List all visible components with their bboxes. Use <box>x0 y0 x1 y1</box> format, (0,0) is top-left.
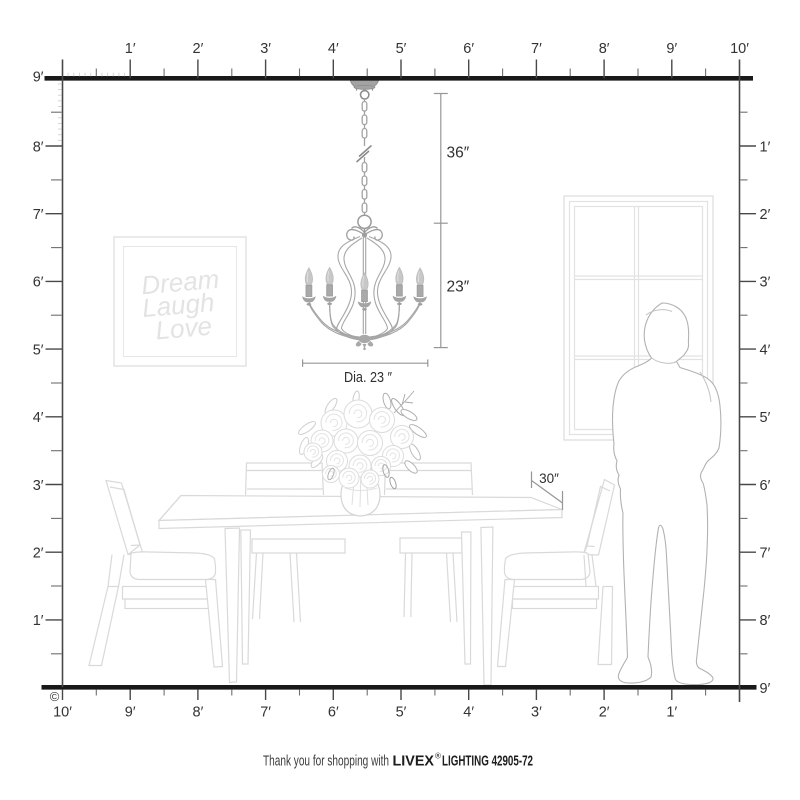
svg-text:4′: 4′ <box>33 410 44 426</box>
svg-text:9′: 9′ <box>666 41 677 57</box>
svg-text:30″: 30″ <box>539 471 559 486</box>
svg-text:9′: 9′ <box>33 70 44 86</box>
svg-text:36″: 36″ <box>447 145 470 162</box>
svg-text:5′: 5′ <box>760 410 771 426</box>
svg-text:10′: 10′ <box>730 41 749 57</box>
svg-text:3′: 3′ <box>531 705 542 721</box>
svg-text:©: © <box>50 689 60 704</box>
svg-text:2′: 2′ <box>599 705 610 721</box>
svg-text:8′: 8′ <box>599 41 610 57</box>
svg-text:1′: 1′ <box>666 705 677 721</box>
svg-text:Thank you for shopping with: Thank you for shopping with <box>263 754 389 770</box>
svg-text:8′: 8′ <box>760 613 771 629</box>
svg-text:5′: 5′ <box>396 705 407 721</box>
svg-text:4′: 4′ <box>760 342 771 358</box>
svg-text:5′: 5′ <box>33 342 44 358</box>
svg-text:2′: 2′ <box>193 41 204 57</box>
svg-text:8′: 8′ <box>33 139 44 155</box>
svg-text:2′: 2′ <box>760 207 771 223</box>
svg-text:5′: 5′ <box>396 41 407 57</box>
svg-text:Love: Love <box>154 311 213 346</box>
svg-text:1′: 1′ <box>760 139 771 155</box>
svg-text:23″: 23″ <box>447 279 470 296</box>
svg-text:6′: 6′ <box>328 705 339 721</box>
svg-text:3′: 3′ <box>760 275 771 291</box>
svg-text:3′: 3′ <box>33 478 44 494</box>
svg-text:3′: 3′ <box>260 41 271 57</box>
svg-text:4′: 4′ <box>463 705 474 721</box>
svg-text:1′: 1′ <box>125 41 136 57</box>
svg-text:LIVEX: LIVEX <box>393 754 435 770</box>
svg-text:1′: 1′ <box>33 613 44 629</box>
svg-text:Dia. 23 ″: Dia. 23 ″ <box>344 369 393 386</box>
svg-text:9′: 9′ <box>760 681 771 697</box>
svg-text:10′: 10′ <box>53 705 72 721</box>
svg-text:4′: 4′ <box>328 41 339 57</box>
svg-text:9′: 9′ <box>125 705 136 721</box>
svg-text:6′: 6′ <box>463 41 474 57</box>
svg-text:7′: 7′ <box>260 705 271 721</box>
svg-text:7′: 7′ <box>531 41 542 57</box>
svg-text:®: ® <box>435 752 441 761</box>
svg-text:6′: 6′ <box>33 275 44 291</box>
svg-text:LIGHTING 42905-72: LIGHTING 42905-72 <box>442 754 533 770</box>
svg-text:6′: 6′ <box>760 478 771 494</box>
svg-text:2′: 2′ <box>33 546 44 562</box>
svg-text:8′: 8′ <box>193 705 204 721</box>
svg-text:7′: 7′ <box>33 207 44 223</box>
svg-text:7′: 7′ <box>760 546 771 562</box>
